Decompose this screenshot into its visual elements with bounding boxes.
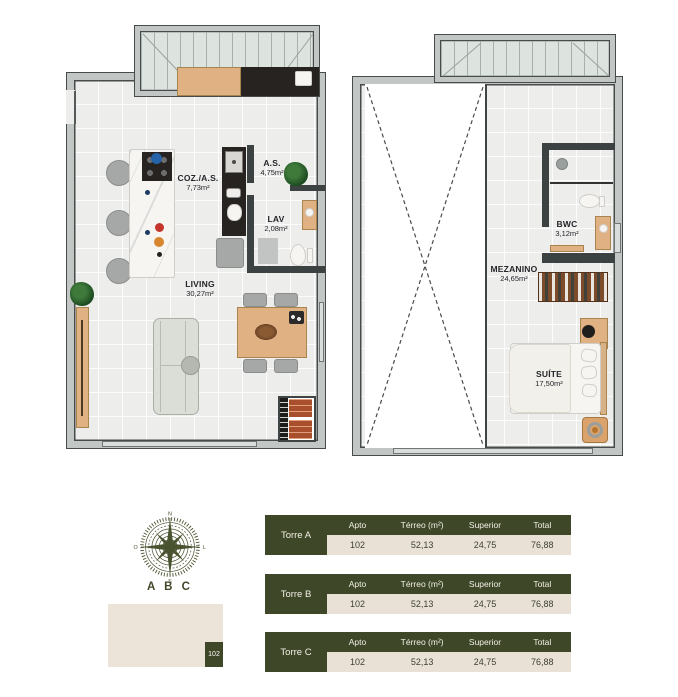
plant <box>70 282 94 306</box>
stair-miter-lines <box>441 41 611 78</box>
bed-pillow <box>580 348 598 363</box>
tower-name-cell: Torre C <box>265 632 327 672</box>
ground-floor-plan: COZ./A.S. 7,73m² A.S. 4,75m² LAV 2,08m² … <box>62 12 340 458</box>
compass-north-label: N <box>168 511 172 517</box>
room-area: 7,73m² <box>172 183 224 192</box>
bbq-grill <box>278 396 316 442</box>
compass-east-label: L <box>203 545 206 551</box>
toaster <box>226 188 241 198</box>
side-window <box>319 302 324 362</box>
cell-total: 76,88 <box>514 599 571 609</box>
col-header-superior: Superior <box>456 637 513 647</box>
island-decor-dot <box>157 252 162 257</box>
partition-wall <box>247 195 254 273</box>
bath-mat <box>258 238 278 264</box>
prep-sink <box>227 204 242 221</box>
toilet-tank <box>307 248 313 263</box>
table-centerpiece <box>255 324 277 340</box>
kitchen-sink <box>295 71 312 86</box>
col-header-superior: Superior <box>456 520 513 530</box>
void-x-marks <box>365 84 485 448</box>
shower-divider <box>550 182 613 184</box>
living-window <box>102 441 257 447</box>
col-header-terreo: Térreo (m²) <box>388 637 456 647</box>
room-name: COZ./A.S. <box>172 173 224 183</box>
room-name: MEZANINO <box>479 264 549 274</box>
staircase <box>435 35 615 82</box>
col-header-total: Total <box>514 637 571 647</box>
room-name: BWC <box>545 219 589 229</box>
tower-name-cell: Torre B <box>265 574 327 614</box>
table-data-row: 102 52,13 24,75 76,88 <box>327 652 571 672</box>
col-header-total: Total <box>514 520 571 530</box>
dining-chair <box>274 293 298 307</box>
cell-superior: 24,75 <box>456 599 513 609</box>
col-header-superior: Superior <box>456 579 513 589</box>
room-area: 4,75m² <box>244 168 300 177</box>
table-torre-c: Torre C Apto Térreo (m²) Superior Total … <box>265 632 571 672</box>
pouf <box>582 417 608 443</box>
room-name: LIVING <box>170 279 230 289</box>
room-label-mezanino: MEZANINO 24,65m² <box>479 264 549 283</box>
table-data-row: 102 52,13 24,75 76,88 <box>327 535 571 555</box>
dining-chair <box>243 359 267 373</box>
upper-floor-plan: MEZANINO 24,65m² BWC 3,12m² SUÍTE 17,50m… <box>353 12 625 460</box>
tower-name-cell: Torre A <box>265 515 327 555</box>
fruit-bowl-orange <box>154 237 164 247</box>
room-label-as: A.S. 4,75m² <box>244 158 300 177</box>
cell-terreo: 52,13 <box>388 540 456 550</box>
island-knob <box>145 230 150 235</box>
shower-head <box>556 158 568 170</box>
col-header-terreo: Térreo (m²) <box>388 520 456 530</box>
lav-sink <box>305 208 314 217</box>
room-area: 30,27m² <box>170 289 230 298</box>
cell-terreo: 52,13 <box>388 657 456 667</box>
fruit-bowl-red <box>155 223 164 232</box>
key-plan: 102 <box>108 604 223 667</box>
cell-apto: 102 <box>327 540 388 550</box>
room-area: 24,65m² <box>479 274 549 283</box>
island-knob <box>145 190 150 195</box>
stair-treads <box>441 41 609 76</box>
compass-west-label: O <box>134 545 138 551</box>
col-header-apto: Apto <box>327 579 388 589</box>
cell-apto: 102 <box>327 657 388 667</box>
col-header-terreo: Térreo (m²) <box>388 579 456 589</box>
room-label-lav: LAV 2,08m² <box>254 214 298 233</box>
cell-terreo: 52,13 <box>388 599 456 609</box>
bwc-sink <box>599 224 608 233</box>
table-header-row: Apto Térreo (m²) Superior Total <box>327 574 571 594</box>
partition-wall <box>542 143 549 227</box>
bwc-window <box>614 223 621 253</box>
armchair <box>216 238 244 268</box>
table-torre-b: Torre B Apto Térreo (m²) Superior Total … <box>265 574 571 614</box>
table-torre-a: Torre A Apto Térreo (m²) Superior Total … <box>265 515 571 555</box>
towel-rack <box>550 245 584 252</box>
sideboard <box>76 307 89 428</box>
cell-superior: 24,75 <box>456 540 513 550</box>
bwc-vanity <box>595 216 611 250</box>
bed-headboard <box>600 342 607 415</box>
dining-chair <box>274 359 298 373</box>
room-label-living: LIVING 30,27m² <box>170 279 230 298</box>
table-header-row: Apto Térreo (m²) Superior Total <box>327 632 571 652</box>
oven-knob-icon <box>232 160 236 164</box>
partition-wall <box>542 253 615 263</box>
room-name: A.S. <box>244 158 300 168</box>
pan <box>151 153 162 164</box>
towers-abc-label: A B C <box>120 581 220 593</box>
partition-wall <box>247 266 325 273</box>
sofa-pillow <box>181 356 200 375</box>
room-label-bwc: BWC 3,12m² <box>545 219 589 238</box>
kitchen-counter-wood <box>177 67 241 96</box>
cell-total: 76,88 <box>514 657 571 667</box>
desk-chair <box>582 325 595 338</box>
cell-superior: 24,75 <box>456 657 513 667</box>
room-label-coz: COZ./A.S. 7,73m² <box>172 173 224 192</box>
double-height-void <box>365 84 487 448</box>
table-header-row: Apto Térreo (m²) Superior Total <box>327 515 571 535</box>
col-header-apto: Apto <box>327 520 388 530</box>
key-plan-unit-badge: 102 <box>205 642 223 667</box>
room-name: LAV <box>254 214 298 224</box>
col-header-total: Total <box>514 579 571 589</box>
room-label-suite: SUÍTE 17,50m² <box>514 369 584 388</box>
room-area: 2,08m² <box>254 224 298 233</box>
toilet <box>579 194 600 208</box>
page: COZ./A.S. 7,73m² A.S. 4,75m² LAV 2,08m² … <box>0 0 678 697</box>
serving-tray <box>289 311 304 324</box>
toilet-tank <box>599 196 605 207</box>
compass-rose-icon: N S L O <box>132 509 208 585</box>
suite-window <box>393 448 593 454</box>
cell-total: 76,88 <box>514 540 571 550</box>
dining-chair <box>243 293 267 307</box>
toilet <box>290 244 306 266</box>
room-area: 3,12m² <box>545 229 589 238</box>
room-area: 17,50m² <box>514 379 584 388</box>
entry-door-leaf <box>74 91 76 124</box>
partition-wall <box>542 143 615 150</box>
cell-apto: 102 <box>327 599 388 609</box>
col-header-apto: Apto <box>327 637 388 647</box>
table-data-row: 102 52,13 24,75 76,88 <box>327 594 571 614</box>
room-name: SUÍTE <box>514 369 584 379</box>
